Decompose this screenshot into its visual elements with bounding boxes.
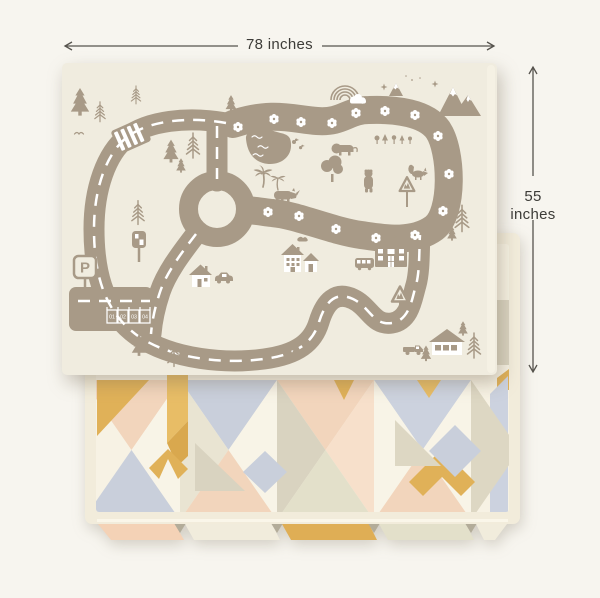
stall-number: 01 [109,315,115,321]
height-dimension-label: 55 inches [501,188,565,224]
road-mat-right-edge [487,65,495,373]
geo-mat-edge-highlight [97,519,508,522]
parking-sign-letter: P [80,260,90,277]
geo-mat-side-edge [98,524,507,540]
product-dimension-scene: 01 02 03 04 P [0,0,600,598]
stall-number: 02 [120,315,126,321]
width-dimension-label: 78 inches [62,36,497,54]
stall-number: 04 [142,315,148,321]
road-mat-graphic: 01 02 03 04 P [62,63,497,375]
road-map-mat: 01 02 03 04 P [62,63,497,375]
stall-number: 03 [131,315,137,321]
